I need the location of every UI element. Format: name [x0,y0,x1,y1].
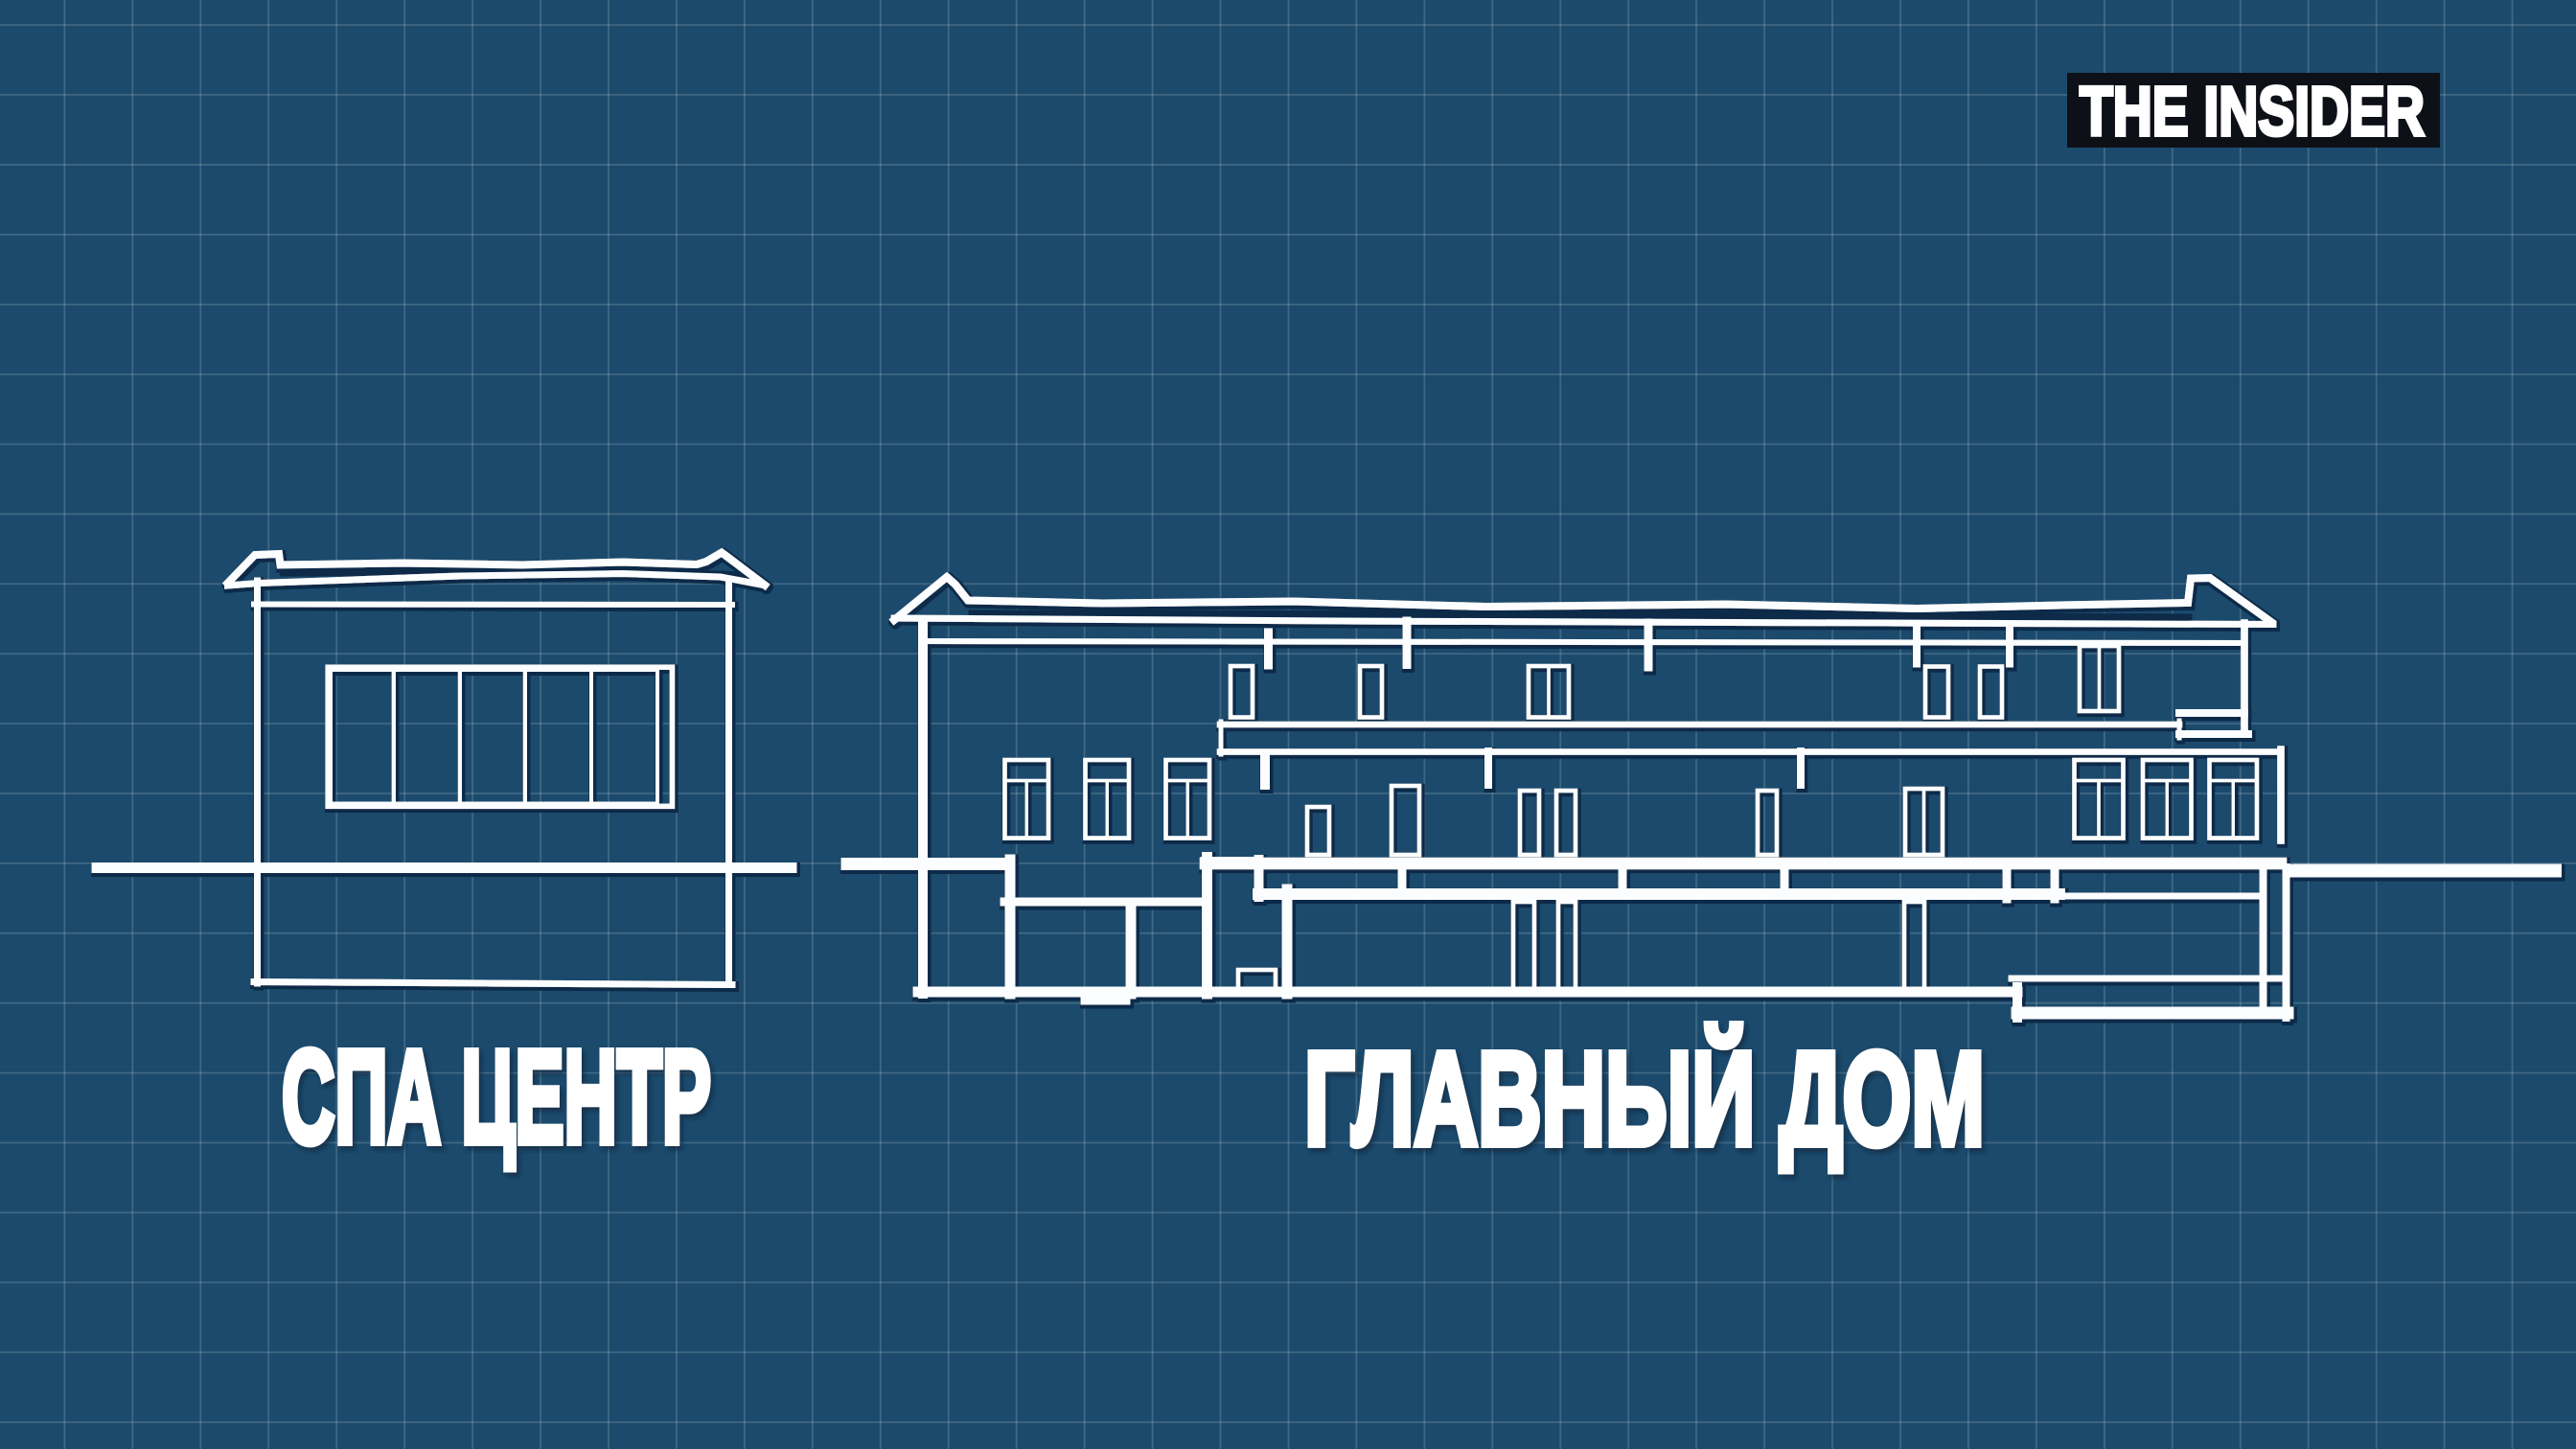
svg-text:СПА ЦЕНТР: СПА ЦЕНТР [282,1023,711,1171]
svg-text:THE INSIDER: THE INSIDER [2080,74,2425,150]
svg-text:ГЛАВНЫЙ ДОМ: ГЛАВНЫЙ ДОМ [1304,1024,1985,1173]
